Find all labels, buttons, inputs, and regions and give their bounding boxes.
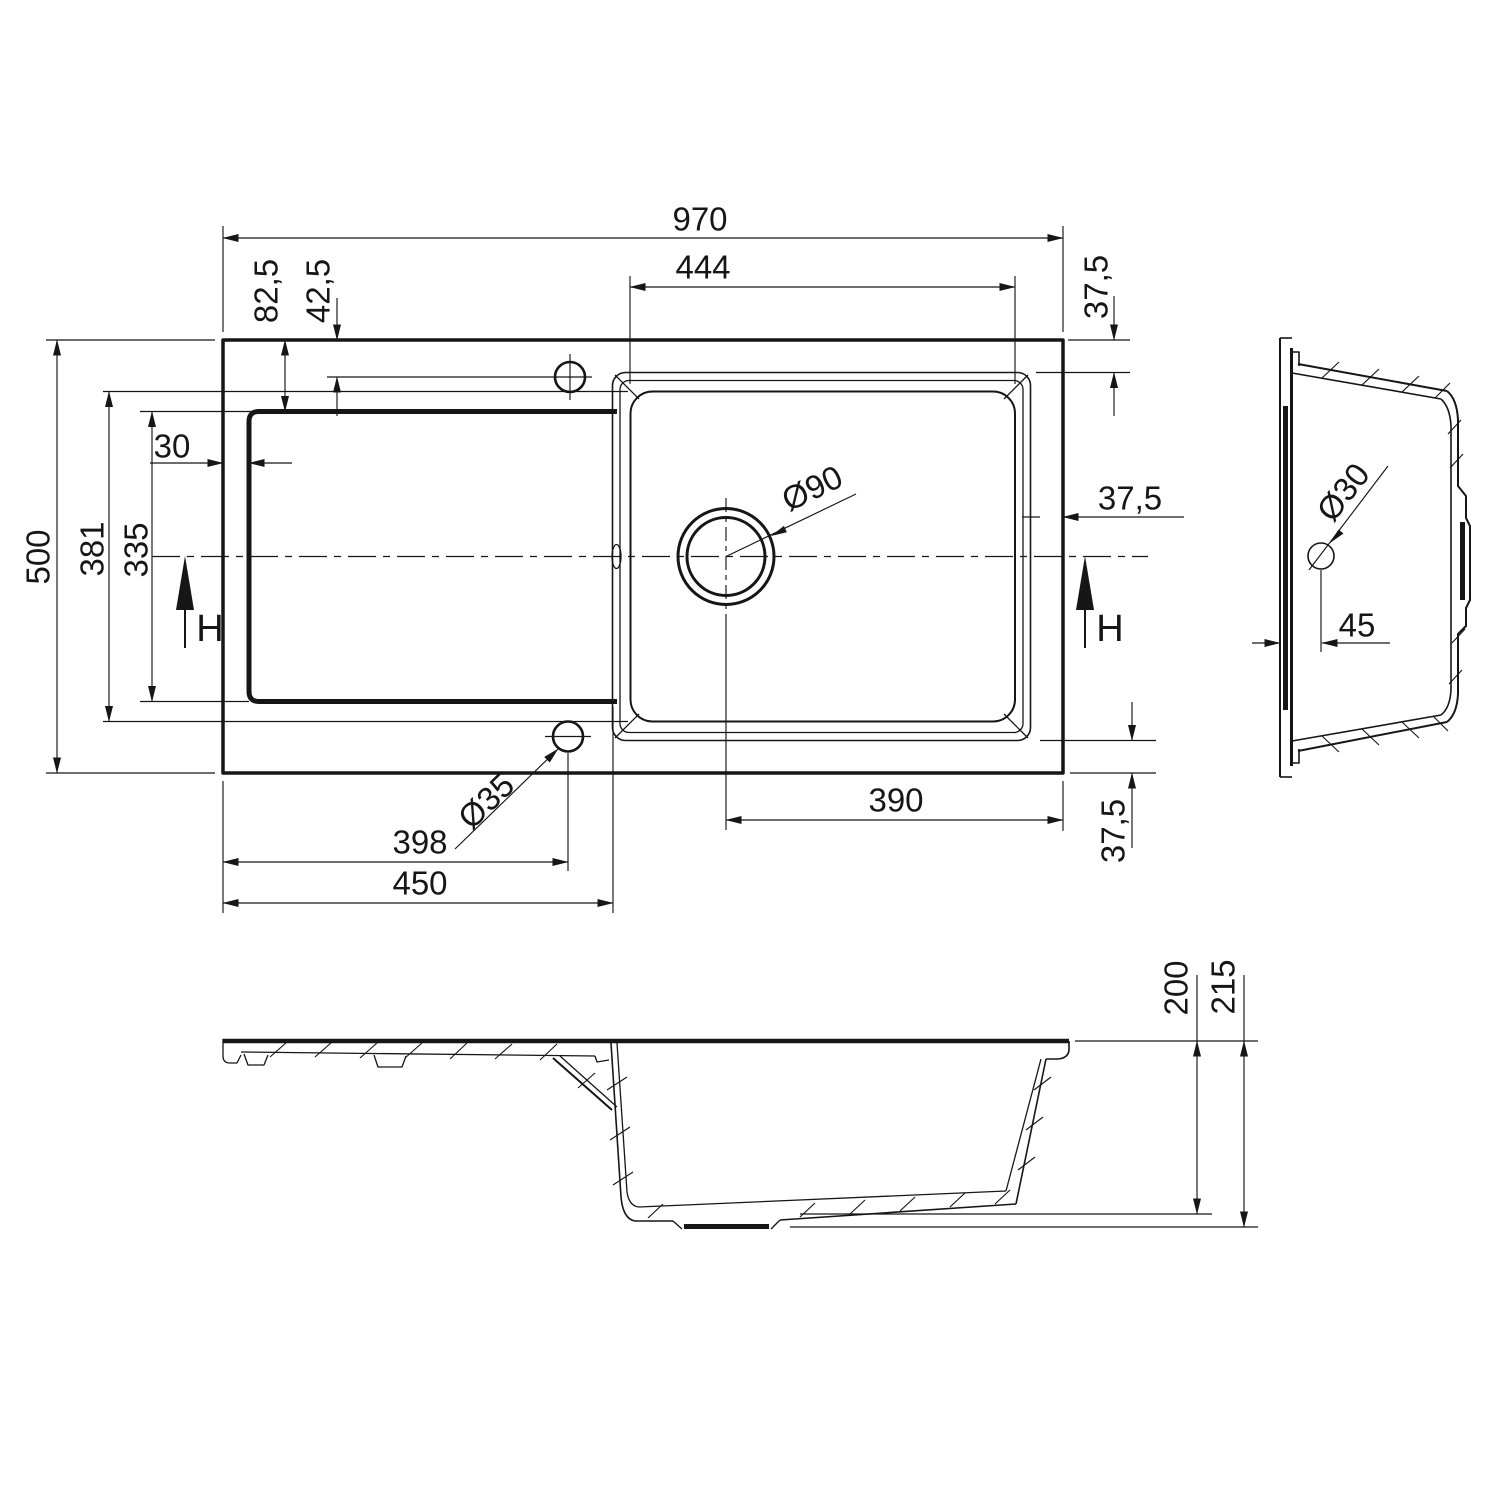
- side-hatching: [1322, 362, 1465, 752]
- dim-overall-depth-label: 500: [20, 529, 57, 584]
- bowl-corner-chamfer: [615, 375, 639, 399]
- dim-side-hole-dia-label: Ø30: [1309, 456, 1377, 528]
- sink-dimension-drawing: H H 970 444 37,5: [0, 0, 1500, 1500]
- side-view: Ø30 45: [1252, 338, 1470, 777]
- section-arrow-right: H: [1076, 556, 1124, 650]
- bowl-corner-chamfer: [1004, 714, 1028, 738]
- faucet-hole-bottom: [545, 722, 591, 872]
- technical-drawing-page: H H 970 444 37,5: [0, 0, 1500, 1500]
- dim-hole-dia-label: Ø35: [451, 766, 522, 836]
- dim-hole-dia: Ø35: [451, 749, 558, 849]
- dim-hole-x-label: 398: [392, 824, 447, 861]
- dim-section-bowl-depth-label: 200: [1158, 960, 1195, 1015]
- dim-board-gap-label: 30: [154, 428, 191, 465]
- dim-board-depth-label: 335: [118, 522, 155, 577]
- section-label-h-right: H: [1096, 608, 1123, 650]
- dim-rim-top: 37,5: [1036, 255, 1130, 416]
- plan-view: H H: [152, 340, 1148, 871]
- dim-rim-right: 37,5: [1022, 480, 1184, 518]
- section-hatching: [270, 1042, 1051, 1218]
- dim-section-overall-height-label: 215: [1205, 959, 1242, 1014]
- dim-drain-offset-label: 390: [868, 782, 923, 819]
- dim-board-gap: 30: [150, 428, 292, 465]
- section-profile: [223, 1039, 1069, 1229]
- dim-overall-width-label: 970: [672, 201, 727, 238]
- dim-drain-dia: Ø90: [726, 458, 856, 557]
- dim-bowl-width: 444: [630, 249, 1015, 385]
- section-label-h-left: H: [196, 608, 223, 650]
- section-dimensions: 200 215: [790, 959, 1258, 1227]
- dim-side-hole-offset-label: 45: [1339, 607, 1376, 644]
- dim-hole-offset-a-label: 82,5: [248, 259, 285, 323]
- section-arrow-left: H: [176, 556, 224, 650]
- bowl-outline: [612, 373, 1031, 741]
- dim-overall-width: 970: [223, 201, 1063, 333]
- dim-bowl-width-label: 444: [675, 249, 730, 286]
- dim-hole-offset-b-label: 42,5: [300, 259, 337, 323]
- dim-drain-dia-label: Ø90: [776, 458, 848, 519]
- dim-board-width-label: 450: [392, 865, 447, 902]
- dim-bowl-depth-label: 381: [74, 521, 111, 576]
- dim-drain-offset: 390: [726, 781, 1063, 831]
- dim-rim-right-label: 37,5: [1098, 480, 1162, 517]
- bowl-corner-chamfer: [1004, 375, 1028, 399]
- dim-board-width: 450: [223, 707, 613, 913]
- dim-rim-bottom-label: 37,5: [1095, 799, 1132, 863]
- dim-hole-offsets: 82,5 42,5: [140, 259, 592, 416]
- drain-hole: [678, 498, 774, 830]
- dim-rim-bottom: 37,5: [1040, 702, 1156, 863]
- bowl-corner-chamfer: [615, 714, 639, 738]
- section-view: 200 215: [223, 959, 1258, 1229]
- dim-rim-top-label: 37,5: [1078, 255, 1115, 319]
